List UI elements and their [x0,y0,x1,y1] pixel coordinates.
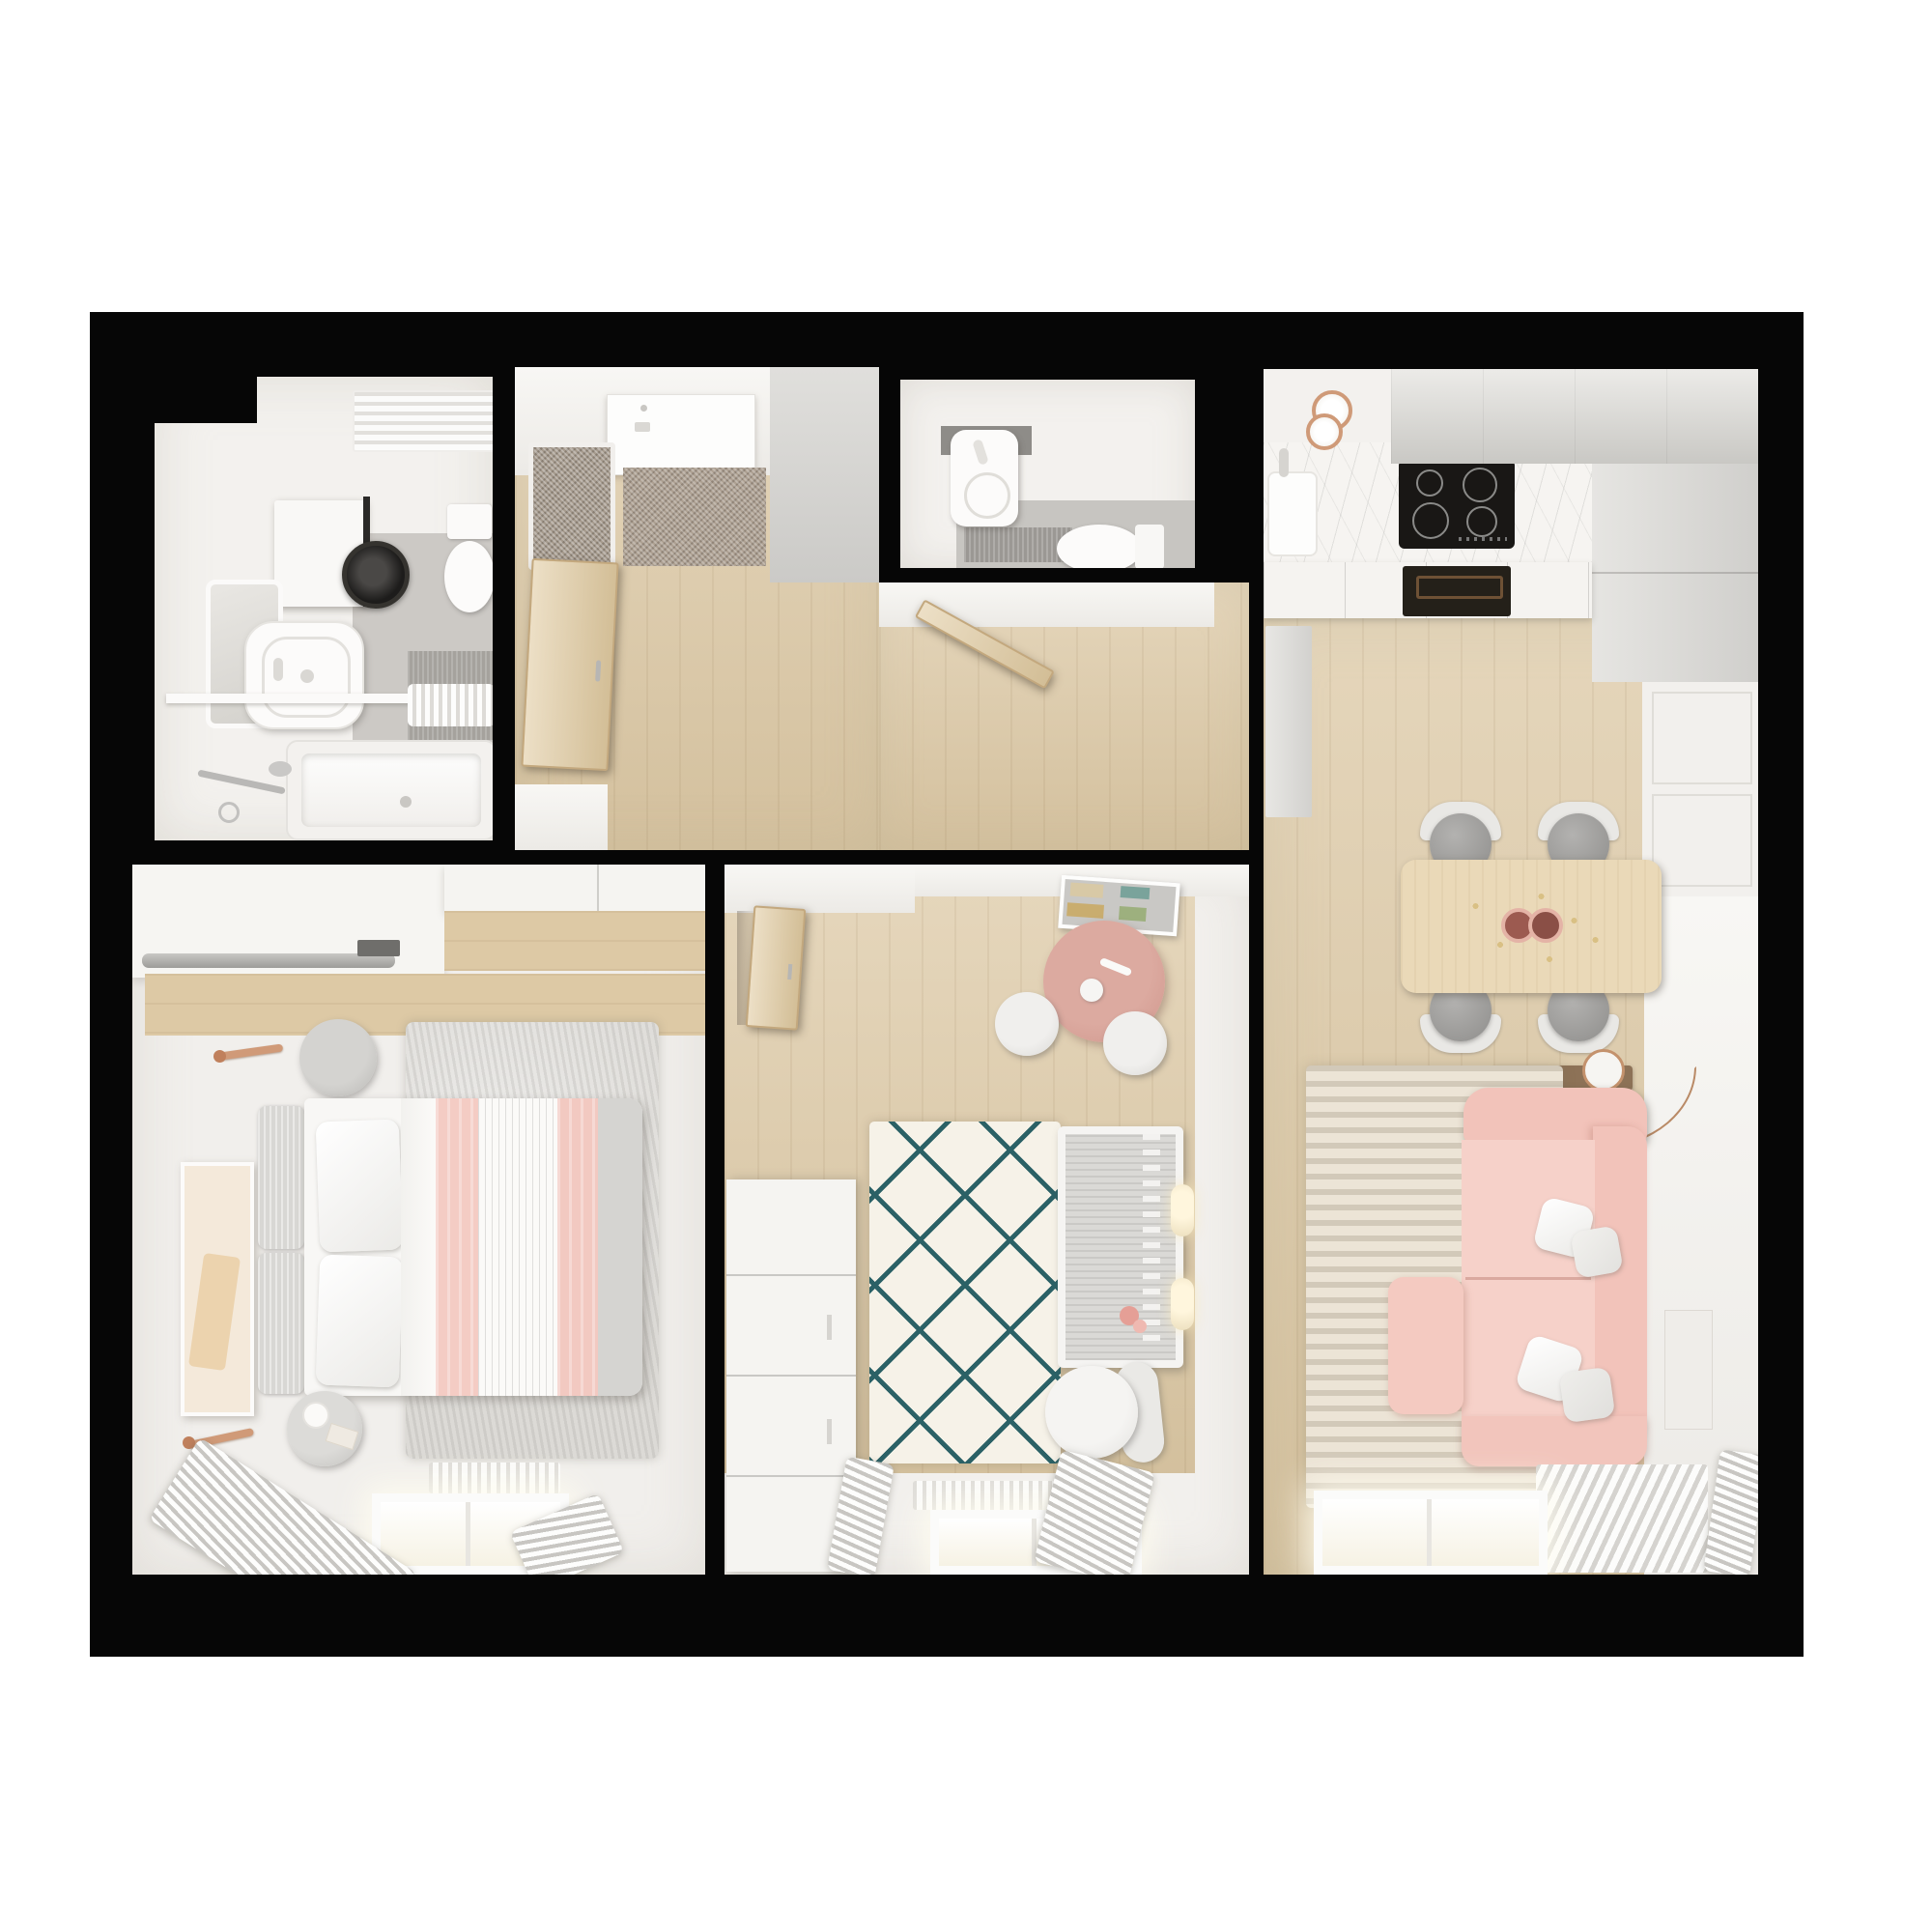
drawer-seam [726,1475,856,1477]
bed-pillow [316,1255,404,1388]
book-cover [1121,886,1151,899]
toilet-tank [447,504,492,539]
room-bathroom [155,377,493,840]
book-cover [1066,902,1104,919]
rail-bracket [357,940,400,956]
towel-radiator [353,390,493,452]
open-wood-door [746,905,807,1030]
duvet-pink-band [557,1098,598,1396]
burner [1463,468,1497,502]
wc-floor-mat [964,527,1072,562]
diamond-rug [869,1122,1061,1463]
sheet-fold [401,1098,436,1396]
bed-pillow [316,1120,404,1253]
cabinet-panel [1652,794,1752,887]
wardrobe-cabinet [444,865,705,911]
built-in-oven [1403,566,1511,616]
washing-machine-door [342,541,410,609]
door-lock-plate [635,422,650,432]
white-cabinet-right [1642,682,1758,896]
room-wc [900,380,1195,568]
burner [1466,506,1497,537]
bedroom-radiator [429,1463,560,1493]
cabinet-seam [1592,572,1758,574]
sink-faucet [273,658,283,681]
stool [1103,1011,1167,1075]
door-peephole [640,405,647,412]
crib [1058,1126,1183,1368]
living-window [1314,1491,1548,1575]
toy-jug [1080,979,1103,1002]
sofa-chaise [1388,1277,1463,1414]
armchair-seat [1045,1366,1138,1459]
double-bed [258,1096,642,1398]
headboard-cushion [258,1253,304,1394]
bed-footboard [598,1098,642,1396]
book-cover [1070,882,1104,897]
wc-toilet-tank [1135,525,1164,568]
dining-table [1401,860,1662,993]
room-bedroom [132,865,705,1575]
room-corridor [879,582,1249,850]
ceiling-lamp [1306,413,1343,450]
door-handle [787,964,792,980]
window-mullion [1427,1499,1432,1566]
sofa-seam [1465,1277,1591,1280]
book-cover [1119,906,1147,922]
vessel-sink [244,621,364,729]
cabinet-seam [597,865,599,911]
picture-abstract-shape [188,1253,241,1371]
tall-unit-fridge [1265,626,1312,817]
sofa-pillow [1559,1367,1616,1424]
room-nursery [724,865,1249,1575]
sink-drain [300,669,314,683]
drawer-seam [726,1375,856,1377]
drawer-handle [827,1419,832,1444]
toilet-bowl [444,541,493,612]
window-mullion [466,1502,470,1566]
oven-handle [1416,576,1503,599]
living-radiator [1536,1464,1708,1573]
kitchen-sink [1267,471,1318,556]
shower-head [269,761,292,777]
floor-plan-render-page: { "scene": { "type": "3d-floor-plan-top-… [0,0,1932,1932]
faucet-cross [218,802,240,823]
open-wood-door [521,558,618,771]
duvet-white-band [478,1098,557,1396]
cabinet-panel [1652,692,1752,784]
bathtub-drain [400,796,412,808]
nursery-radiator [913,1481,1058,1510]
picture-frame [181,1162,254,1416]
drawer-handle [827,1315,832,1340]
wall-lamp [1171,1278,1194,1330]
sofa-pillow [1570,1225,1624,1279]
wall-art [1664,1310,1713,1430]
stool [995,992,1059,1056]
wc-toilet-bowl [1057,525,1142,568]
kitchen-faucet [1279,448,1289,477]
pink-corner-sofa [1388,1088,1649,1466]
pin-board [528,442,615,570]
vase-cup [1528,908,1563,943]
hall-south-wall-face [515,784,608,850]
induction-hob [1399,460,1515,549]
wall-lamp [1171,1184,1194,1236]
wc-west-wall-face [770,367,879,582]
burner [1412,502,1449,539]
wall-notch [155,377,257,423]
bathtub [286,740,493,840]
sconce-knob [213,1050,226,1063]
sofa-seat-bottom [1462,1416,1647,1466]
burner [1416,469,1443,497]
hanging-towels [408,684,493,726]
entrance-door [607,394,755,475]
bedroom-wood-strip [444,911,705,971]
nursery-door-opening [724,865,915,913]
upper-cabinet-right [1592,464,1758,682]
bathtub-basin [301,753,481,827]
room-hall [515,367,879,850]
pouf [299,1019,377,1096]
hob-controls [1459,537,1507,541]
drawer-seam [726,1274,856,1276]
doormat [623,468,766,566]
door-handle [595,660,601,681]
sink-faucet [972,439,989,466]
doll-part [1133,1320,1147,1333]
room-kitchen-living [1264,369,1758,1575]
crib-rail [1143,1134,1160,1345]
wall-sconce [219,1043,283,1060]
upper-cabinet-top [1391,369,1758,464]
sink-bowl [964,472,1010,519]
headboard-cushion [258,1106,304,1249]
table-lamp-ball [302,1402,329,1429]
wall-hung-sink [951,430,1018,526]
duvet-pink-band [436,1098,478,1396]
